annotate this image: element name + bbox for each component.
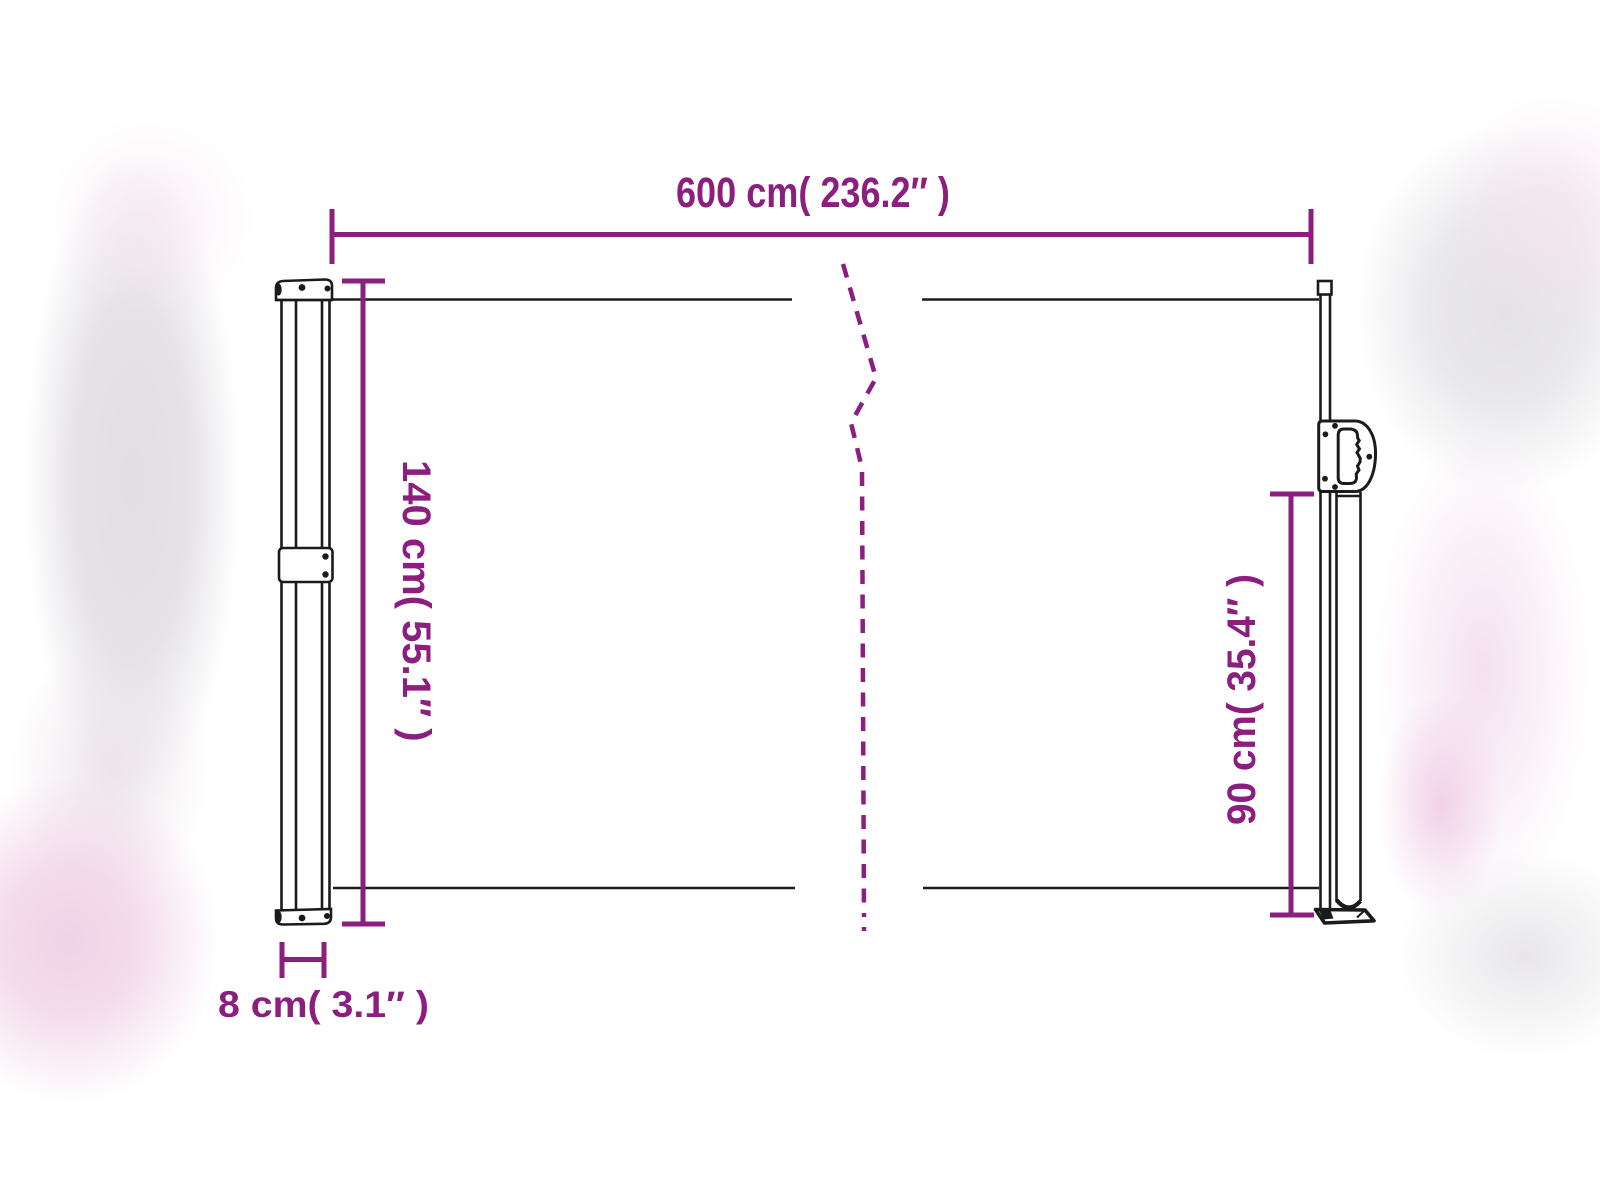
svg-text:600 cm( 236.2″ ): 600 cm( 236.2″ ) xyxy=(676,169,950,216)
svg-text:90 cm( 35.4″ ): 90 cm( 35.4″ ) xyxy=(1219,574,1264,825)
svg-text:8 cm( 3.1″ ): 8 cm( 3.1″ ) xyxy=(218,984,429,1026)
svg-text:140 cm( 55.1″ ): 140 cm( 55.1″ ) xyxy=(394,460,438,742)
